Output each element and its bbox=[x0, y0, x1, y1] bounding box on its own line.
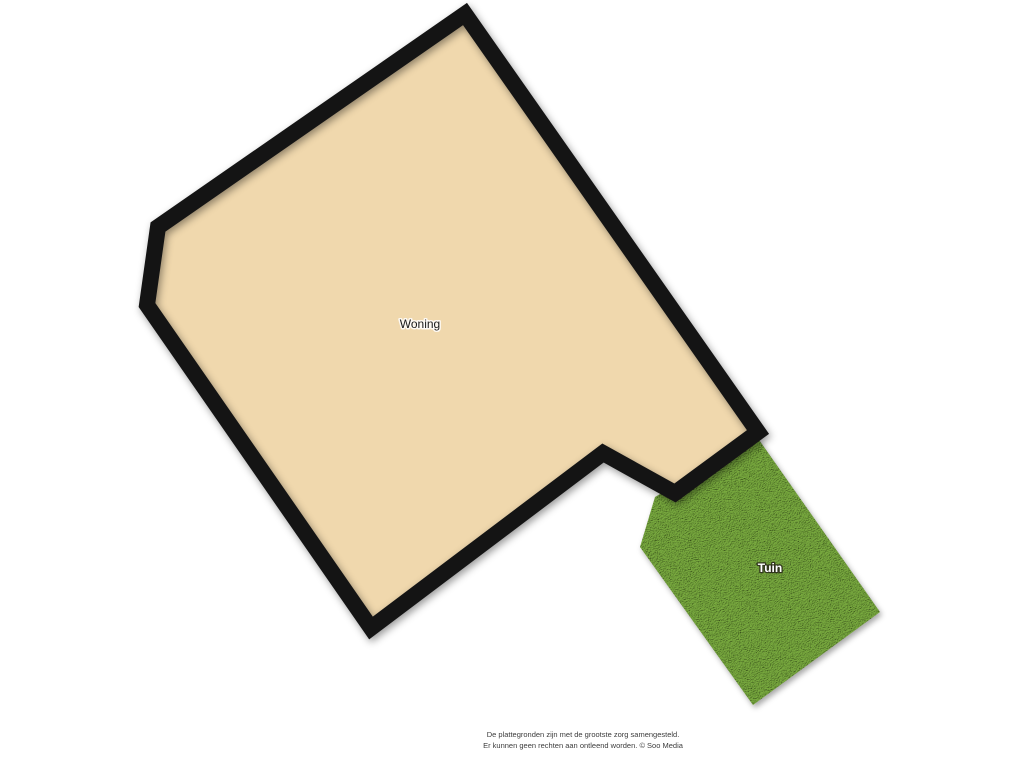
disclaimer-note: De plattegronden zijn met de grootste zo… bbox=[483, 729, 683, 751]
disclaimer-line-2: Er kunnen geen rechten aan ontleend word… bbox=[483, 740, 683, 751]
disclaimer-line-1: De plattegronden zijn met de grootste zo… bbox=[483, 729, 683, 740]
building-label: Woning bbox=[400, 317, 440, 331]
floorplan-canvas: Woning Tuin bbox=[0, 0, 1024, 768]
garden-label: Tuin bbox=[758, 561, 782, 575]
floorplan-page: Woning Tuin De plattegronden zijn met de… bbox=[0, 0, 1024, 768]
